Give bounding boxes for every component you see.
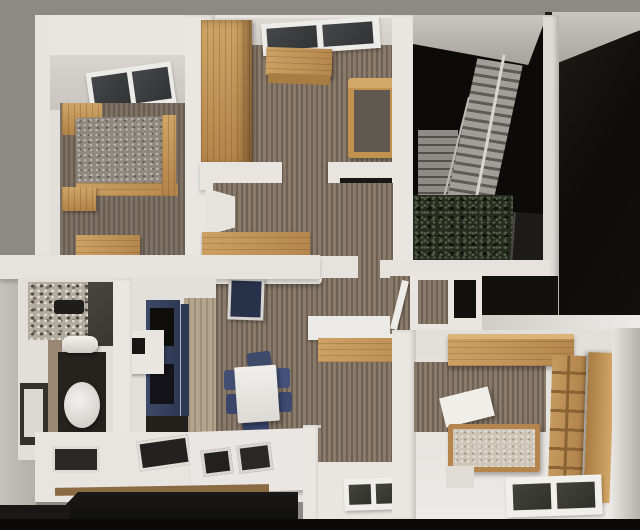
toilet bbox=[64, 382, 100, 428]
bottom-edge-strip bbox=[0, 519, 640, 530]
skylight-pane bbox=[322, 21, 373, 46]
bed-frame-side bbox=[162, 115, 176, 195]
stairwell-ceiling bbox=[413, 15, 547, 65]
single-bed-headrail bbox=[348, 78, 396, 88]
tv-on-island bbox=[227, 277, 264, 320]
bedroom-top-left bbox=[50, 55, 192, 270]
bed-bottom-right bbox=[448, 424, 540, 472]
towel-roll bbox=[62, 336, 98, 353]
bathroom-kitchen-top-wall bbox=[0, 255, 320, 279]
dining-chair-right-2 bbox=[278, 392, 292, 412]
window-pane bbox=[349, 484, 372, 505]
apartment-model-render bbox=[0, 0, 640, 530]
island-inset-right bbox=[236, 442, 273, 474]
dining-table bbox=[234, 365, 280, 424]
hallway-black-floor bbox=[478, 276, 558, 320]
cubby-open-left bbox=[418, 280, 448, 324]
bed-mattress bbox=[453, 429, 535, 467]
plants bbox=[413, 195, 513, 268]
skylight-pane bbox=[132, 67, 172, 104]
granite-sink-slot bbox=[54, 300, 84, 314]
tv-panel bbox=[510, 212, 545, 264]
dining-chair-right-1 bbox=[276, 368, 290, 388]
single-bed bbox=[348, 84, 396, 158]
counter-black-inset bbox=[132, 338, 145, 354]
cubby-shelf bbox=[410, 272, 482, 336]
bedroom-h-left-wall bbox=[392, 330, 416, 520]
bed-blanket bbox=[75, 116, 170, 190]
island-inset-left bbox=[201, 447, 234, 476]
sofa-arm bbox=[318, 256, 358, 278]
cubby-open-right bbox=[454, 280, 476, 318]
desk-front bbox=[268, 73, 330, 85]
wardrobe bbox=[201, 20, 252, 167]
right-wall-bottom bbox=[612, 328, 640, 520]
white-step bbox=[446, 466, 474, 488]
washer-door bbox=[24, 389, 43, 437]
nightstand bbox=[62, 187, 96, 211]
navy-shelf-edge bbox=[180, 304, 189, 416]
bedroom-h-window bbox=[505, 474, 602, 517]
window-pane bbox=[513, 483, 552, 510]
stairwell bbox=[413, 15, 547, 268]
window-pane bbox=[557, 482, 596, 509]
counter-inset-1 bbox=[52, 446, 100, 473]
